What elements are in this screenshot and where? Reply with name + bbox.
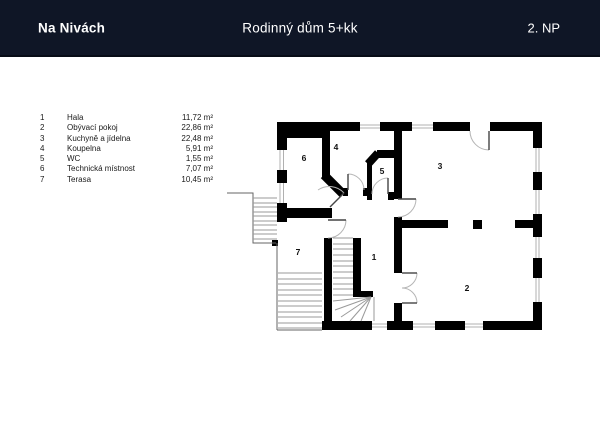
page: Na Nivách Rodinný dům 5+kk 2. NP 1 Hala … <box>0 0 600 436</box>
exterior-staircase <box>227 193 277 243</box>
doors-group <box>318 131 489 303</box>
floor-plan: 1 2 3 4 5 6 7 <box>0 0 600 436</box>
room-label-terasa: 7 <box>296 247 301 257</box>
room-label-obyvaci: 2 <box>465 283 470 293</box>
room-label-technicka: 6 <box>302 153 307 163</box>
room-label-wc: 5 <box>380 166 385 176</box>
room-label-hala: 1 <box>372 252 377 262</box>
room-label-kuchyne: 3 <box>438 161 443 171</box>
walls-group <box>272 122 542 330</box>
room-label-koupelna: 4 <box>334 142 339 152</box>
